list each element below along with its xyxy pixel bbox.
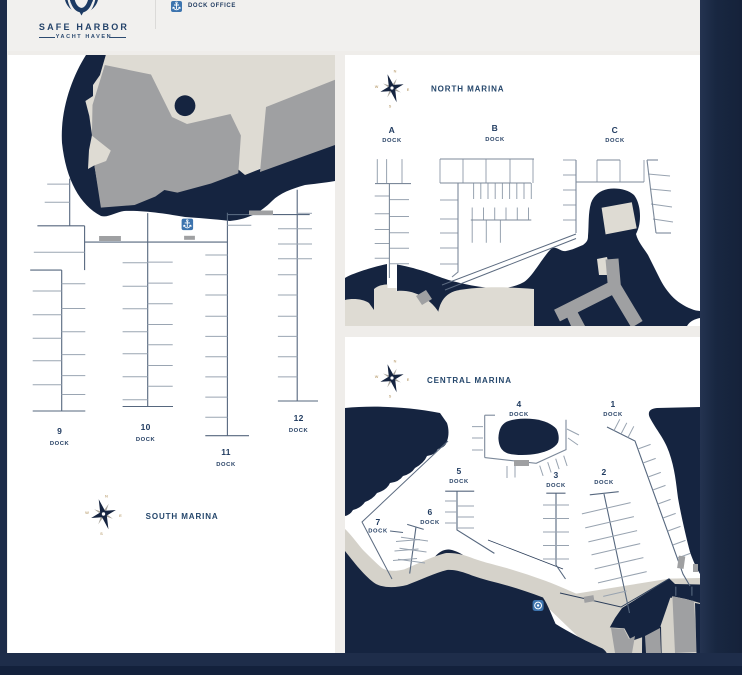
svg-text:DOCK: DOCK (368, 529, 388, 535)
svg-text:W: W (85, 510, 89, 515)
svg-text:3: 3 (553, 470, 558, 480)
svg-text:DOCK: DOCK (603, 412, 623, 418)
svg-text:A: A (389, 125, 396, 135)
svg-text:2: 2 (601, 467, 606, 477)
svg-text:E: E (119, 513, 122, 518)
svg-text:N: N (105, 494, 108, 499)
svg-text:4: 4 (516, 399, 521, 409)
svg-text:DOCK: DOCK (509, 412, 529, 418)
svg-text:E: E (407, 88, 410, 92)
svg-text:N: N (394, 360, 397, 364)
svg-text:DOCK: DOCK (216, 462, 236, 468)
svg-text:S: S (389, 105, 392, 109)
svg-text:12: 12 (294, 413, 304, 423)
svg-text:11: 11 (221, 447, 231, 457)
svg-text:N: N (394, 70, 397, 74)
svg-text:1: 1 (610, 399, 615, 409)
svg-text:7: 7 (375, 517, 380, 527)
svg-text:E: E (407, 378, 410, 382)
svg-text:DOCK: DOCK (50, 441, 70, 447)
svg-text:DOCK: DOCK (605, 138, 625, 144)
svg-text:9: 9 (57, 426, 62, 436)
svg-text:DOCK: DOCK (485, 137, 505, 143)
svg-text:SOUTH MARINA: SOUTH MARINA (146, 512, 219, 521)
svg-text:DOCK: DOCK (136, 437, 156, 443)
svg-text:DOCK: DOCK (420, 520, 440, 526)
svg-text:DOCK: DOCK (594, 480, 614, 486)
svg-text:DOCK: DOCK (289, 428, 309, 434)
svg-text:W: W (375, 375, 379, 379)
svg-text:5: 5 (456, 466, 461, 476)
svg-text:6: 6 (427, 507, 432, 517)
svg-text:DOCK: DOCK (546, 483, 566, 489)
svg-text:W: W (375, 85, 379, 89)
svg-text:NORTH MARINA: NORTH MARINA (431, 85, 504, 94)
svg-text:C: C (612, 125, 619, 135)
svg-text:B: B (492, 123, 499, 133)
svg-text:DOCK: DOCK (449, 479, 469, 485)
svg-text:10: 10 (141, 422, 151, 432)
svg-text:S: S (100, 531, 103, 536)
svg-text:DOCK: DOCK (382, 138, 402, 144)
svg-text:CENTRAL MARINA: CENTRAL MARINA (427, 376, 512, 385)
svg-text:S: S (389, 395, 392, 399)
